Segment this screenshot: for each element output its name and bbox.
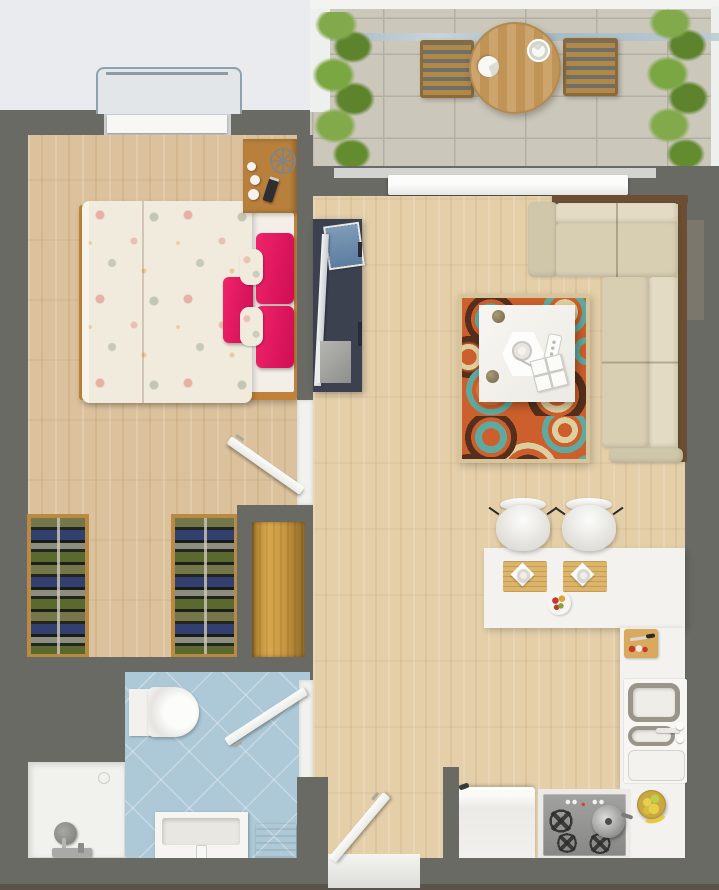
vanity-basin (162, 818, 240, 845)
sofa-back-right (649, 277, 678, 448)
wall-bathroom-left-block (0, 657, 130, 767)
sliding-door (388, 175, 628, 195)
candle-1 (247, 162, 256, 171)
pot-lid-knob (605, 818, 612, 825)
outdoor-chair-right (563, 38, 618, 96)
shower-tray (28, 762, 125, 858)
wall-alcove-left (237, 505, 252, 672)
entry-wood-panel (252, 522, 305, 657)
sink-drainboard (628, 750, 685, 781)
wall-divider-top (297, 135, 313, 400)
wardrobe-left (27, 514, 89, 658)
shower-mixer (52, 848, 92, 857)
faucet-knob-1 (676, 722, 684, 730)
wardrobe-right (171, 514, 238, 658)
plate-1 (517, 569, 530, 582)
table-knob-2 (486, 370, 499, 383)
burner-2 (556, 833, 578, 853)
wall-stub-kitchen (443, 767, 459, 858)
chair-seat (496, 505, 550, 551)
sofa-frame-right (678, 204, 687, 462)
bolster-pillow-2 (240, 307, 263, 346)
serving-plate (547, 591, 571, 615)
sofa-back-top (556, 203, 678, 223)
sofa-seat-top (556, 223, 678, 277)
bar-chair-1 (496, 498, 550, 552)
bolster-pillow-1 (240, 249, 263, 285)
candle-3 (248, 189, 259, 200)
shower-drain (98, 772, 110, 784)
window-glass-line (106, 72, 228, 75)
sofa-seat-right (602, 277, 649, 448)
tv-connector-2 (358, 322, 362, 346)
refrigerator (459, 787, 535, 858)
wooden-step (256, 824, 296, 858)
plant-left (312, 12, 376, 170)
toilet-bowl (148, 687, 199, 737)
plant-right (646, 10, 710, 170)
bar-chair-2 (562, 498, 616, 552)
wall-left (0, 110, 28, 890)
candle-2 (250, 175, 260, 185)
tv-base (317, 341, 351, 383)
balcony-railing-top (310, 0, 719, 9)
mixer-handle (78, 843, 84, 853)
wall-niche (684, 220, 704, 320)
chair-seat (562, 505, 616, 551)
wheel-decor-icon (268, 146, 298, 176)
sofa-armrest-left (528, 202, 558, 277)
chopped-food (628, 644, 648, 654)
floor-plan-render (0, 0, 719, 890)
table-knob-1 (492, 310, 505, 323)
tv-connector-1 (358, 242, 362, 257)
sink-basin-main (628, 683, 680, 722)
balcony-railing-right (711, 6, 719, 170)
entrance-threshold (328, 854, 420, 888)
sofa-armrest-bottom (609, 448, 683, 463)
window-sill (107, 115, 227, 133)
outdoor-chair-left (420, 40, 474, 98)
faucet-knob-2 (676, 735, 684, 743)
burner-1 (548, 809, 574, 833)
plate-2 (577, 569, 590, 582)
